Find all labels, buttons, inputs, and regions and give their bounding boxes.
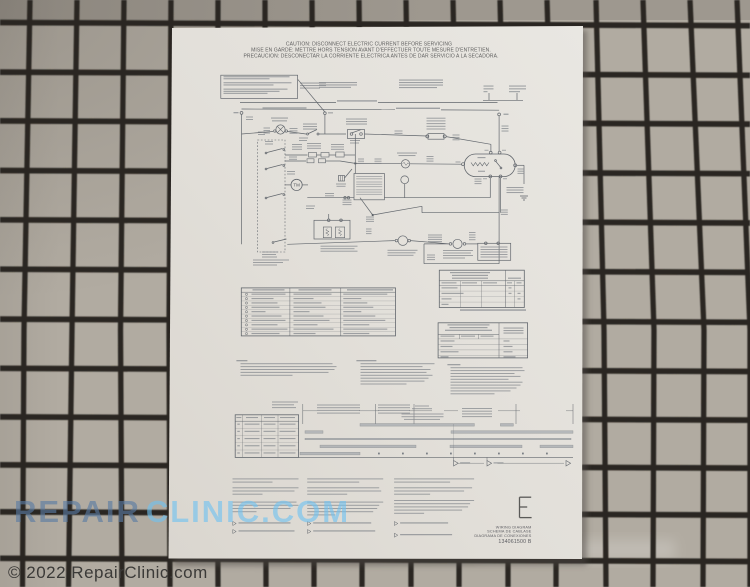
svg-text:DIAGRAMA DE CONEXIONES: DIAGRAMA DE CONEXIONES bbox=[474, 534, 531, 538]
svg-text:PRECAUCION: DESCONECTAR LA COR: PRECAUCION: DESCONECTAR LA CORRIENTE ELE… bbox=[243, 54, 498, 60]
svg-text:TM: TM bbox=[293, 183, 300, 188]
svg-text:REPAIRCLINIC.COM: REPAIRCLINIC.COM bbox=[14, 494, 350, 529]
svg-text:© 2022 RepairClinic.com: © 2022 RepairClinic.com bbox=[8, 563, 208, 582]
svg-text:134061500 B: 134061500 B bbox=[498, 539, 531, 545]
svg-text:MISE EN GARDE: METTRE HORS TEN: MISE EN GARDE: METTRE HORS TENSION AVANT… bbox=[251, 47, 491, 53]
